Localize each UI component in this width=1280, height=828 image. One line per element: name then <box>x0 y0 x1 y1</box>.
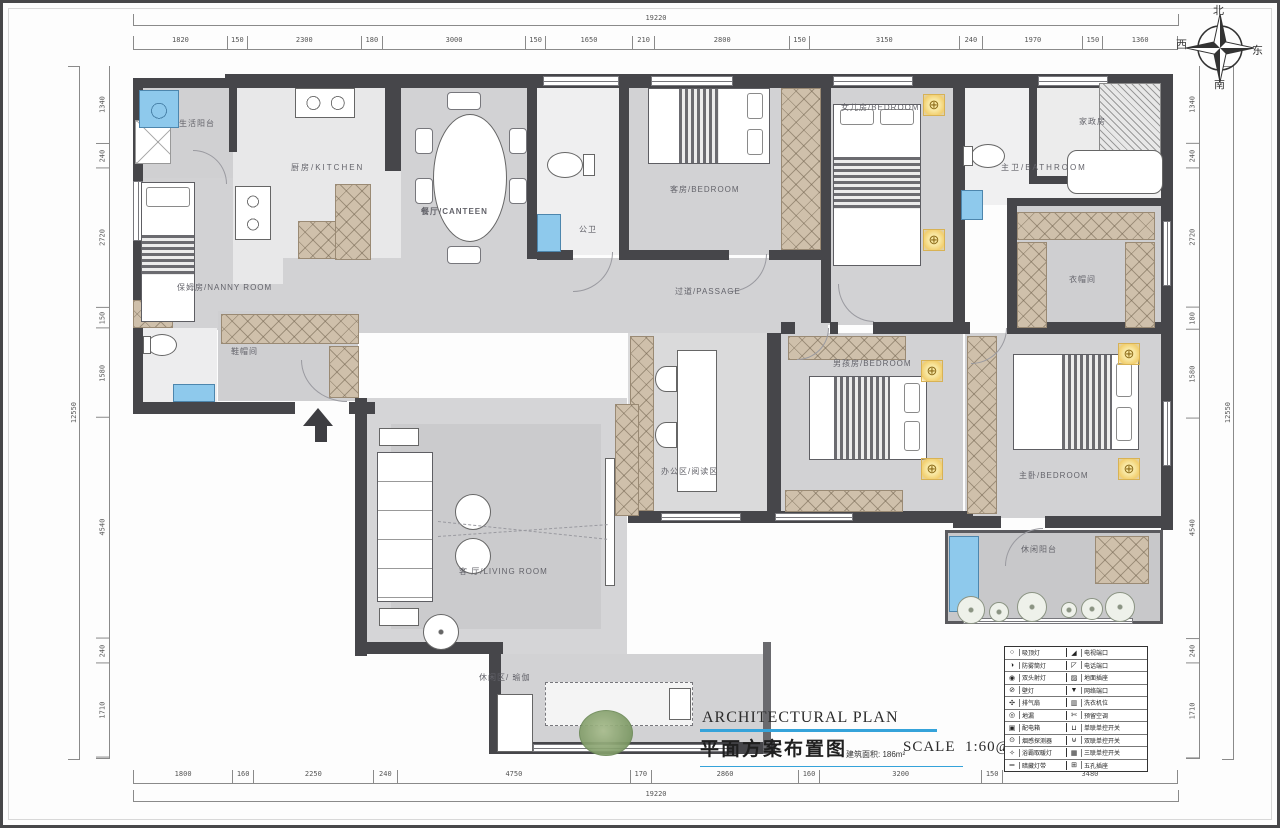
dim-value: 2720 <box>1186 168 1199 308</box>
pillow <box>1116 407 1132 441</box>
legend-row: ═暗藏灯带⊞五孔插座 <box>1005 759 1147 772</box>
wall-segment <box>1007 198 1163 206</box>
legend-icon: ⊙ <box>1005 736 1020 744</box>
dim-value: 1340 <box>96 66 109 144</box>
legend-row: ◉双头射灯▨地面插座 <box>1005 671 1147 684</box>
dim-value: 4750 <box>397 770 630 783</box>
ceiling-light-symbol: ⊕ <box>921 360 943 382</box>
title-underline <box>700 729 937 732</box>
dim-value: 4540 <box>1186 418 1199 639</box>
window <box>1038 76 1108 86</box>
bed-boy <box>809 376 927 460</box>
legend-row: ◎地漏✄预留空调 <box>1005 709 1147 722</box>
dim-value: 150 <box>227 36 247 49</box>
dim-value: 180 <box>361 36 382 49</box>
room-label-passage: 过道/PASSAGE <box>675 286 741 297</box>
compass-label-east: 东 <box>1252 42 1263 58</box>
bed-blanket <box>679 89 719 163</box>
room-label-kitchen: 厨房/KITCHEN <box>291 162 364 173</box>
legend-label: 三联单控开关 <box>1082 748 1147 757</box>
legend-label: 排气扇 <box>1020 698 1067 707</box>
room-label-yoga: 休闲区/ 瑜伽 <box>479 672 530 683</box>
legend-row: ○吸顶灯◢电视端口 <box>1005 647 1147 659</box>
window <box>963 618 1133 624</box>
legend-table: ○吸顶灯◢电视端口 ◑防雾筒灯◸电话端口 ◉双头射灯▨地面插座 ⊘壁灯▼网络端口… <box>1004 646 1148 772</box>
legend-label: 浴霸取暖灯 <box>1020 748 1067 757</box>
wall-segment <box>767 333 781 513</box>
shoe-cabinet <box>221 314 359 344</box>
potted-plant <box>989 602 1009 622</box>
compass-label-south: 南 <box>1214 76 1225 92</box>
yoga-bench <box>669 688 691 720</box>
legend-icon: ⊔ <box>1067 724 1082 732</box>
wash-basin <box>961 190 983 220</box>
legend-label: 电话端口 <box>1082 661 1147 670</box>
legend-icon: ▣ <box>1005 724 1020 732</box>
dim-value: 240 <box>1186 144 1199 168</box>
pillow <box>1116 363 1132 397</box>
legend-label: 单联单控开关 <box>1082 723 1147 732</box>
dim-value: 1580 <box>1186 330 1199 419</box>
side-table <box>379 428 419 446</box>
toilet-tank <box>583 154 595 176</box>
bed-nanny <box>141 182 195 322</box>
dim-value: 4540 <box>96 417 109 639</box>
legend-row: ⊘壁灯▼网络端口 <box>1005 684 1147 697</box>
dim-value: 150 <box>981 770 1001 783</box>
dim-value: 2250 <box>253 770 373 783</box>
toilet-tank <box>963 146 973 166</box>
ceiling-light-symbol: ⊕ <box>1118 458 1140 480</box>
dim-value: 1580 <box>96 329 109 418</box>
pillow <box>904 421 920 451</box>
legend-label: 地漏 <box>1020 711 1067 720</box>
desk-chair <box>655 422 677 448</box>
wash-basin <box>537 214 561 252</box>
legend-label: 配电箱 <box>1020 723 1067 732</box>
legend-label: 防雾筒灯 <box>1020 661 1067 670</box>
legend-label: 暗藏灯带 <box>1020 761 1067 770</box>
bed-guest <box>648 88 770 164</box>
bed-blanket <box>142 235 194 275</box>
dining-chair <box>415 178 433 204</box>
room-label-office: 办公区/阅读区 <box>661 466 718 477</box>
room-label-master-bedroom: 主卧/BEDROOM <box>1019 470 1089 481</box>
wardrobe-cabinet <box>781 88 821 250</box>
legend-icon: ○ <box>1005 649 1020 656</box>
compass-rose <box>1182 8 1258 84</box>
dim-value: 240 <box>96 144 109 168</box>
dim-value: 240 <box>96 639 109 663</box>
building-area: 建筑面积: 186m² <box>846 749 905 760</box>
bed-blanket <box>834 157 920 209</box>
dim-chain-left: 1340 240 2720 150 1580 4540 240 1710 <box>96 66 110 759</box>
floor-lamp <box>423 614 459 650</box>
room-label-daughter: 女儿房/BEDROOM <box>841 102 920 113</box>
legend-icon: ⊘ <box>1005 686 1020 694</box>
wash-basin <box>173 384 215 402</box>
wall-segment <box>1045 516 1163 528</box>
wall-segment <box>619 83 629 259</box>
dim-value: 160 <box>232 770 253 783</box>
dining-chair <box>447 92 481 110</box>
window <box>833 76 913 86</box>
legend-icon: ⊞ <box>1067 761 1082 769</box>
wall-segment <box>1007 206 1017 332</box>
legend-label: 地面插座 <box>1082 673 1147 682</box>
legend-label: 预留空调 <box>1082 711 1147 720</box>
storage-unit <box>497 694 533 752</box>
pillow <box>747 129 763 155</box>
toilet <box>147 334 177 356</box>
pillow <box>747 93 763 119</box>
wall-segment <box>355 398 367 656</box>
window <box>775 513 853 521</box>
toilet-tank <box>143 336 151 354</box>
dim-overall-left: 12550 <box>68 66 80 760</box>
bed-blanket <box>1062 355 1112 449</box>
title-english: ARCHITECTURAL PLAN <box>702 709 899 727</box>
legend-row: ◑防雾筒灯◸电话端口 <box>1005 659 1147 672</box>
legend-row: ▣配电箱⊔单联单控开关 <box>1005 721 1147 734</box>
entry-arrow <box>303 408 333 426</box>
wall-segment <box>769 250 821 260</box>
room-label-master-bath: 主卫/BATHROOM <box>1001 162 1087 173</box>
legend-icon: ⊎ <box>1067 736 1082 744</box>
legend-icon: ◑ <box>1005 662 1020 669</box>
room-label-living: 客 厅/LIVING ROOM <box>459 566 548 577</box>
dim-value: 1970 <box>982 36 1082 49</box>
legend-icon: ▼ <box>1067 687 1082 694</box>
wall-segment <box>619 250 729 260</box>
cloak-wardrobe <box>1017 242 1047 328</box>
cloak-wardrobe <box>1017 212 1155 240</box>
dim-chain-right: 1340 240 2720 180 1580 4540 240 1710 <box>1186 66 1200 759</box>
cloak-wardrobe <box>1125 242 1155 328</box>
legend-icon: ◢ <box>1067 649 1082 657</box>
legend-icon: ═ <box>1005 762 1020 769</box>
legend-icon: ✧ <box>1005 749 1020 757</box>
potted-plant <box>1081 598 1103 620</box>
ceiling-light-symbol: ⊕ <box>921 458 943 480</box>
compass-label-north: 北 <box>1213 2 1224 18</box>
wall-segment <box>781 322 795 334</box>
bookshelf-cabinet <box>615 404 639 516</box>
legend-label: 吸顶灯 <box>1020 648 1067 657</box>
wardrobe-cabinet <box>785 490 903 512</box>
legend-label: 双联单控开关 <box>1082 736 1147 745</box>
bed-blanket <box>834 377 890 459</box>
window <box>533 744 728 752</box>
desk-chair <box>655 366 677 392</box>
wall-segment <box>133 402 295 414</box>
dining-chair <box>415 128 433 154</box>
room-label-leisure-balcony: 休闲阳台 <box>1021 544 1057 555</box>
bed-daughter <box>833 104 921 266</box>
legend-label: 洗衣机位 <box>1082 698 1147 707</box>
dim-value: 160 <box>798 770 819 783</box>
dim-overall-bottom: 19220 <box>133 790 1179 802</box>
compass-label-west: 西 <box>1176 36 1187 52</box>
dim-value: 1710 <box>1186 664 1199 758</box>
window <box>1163 221 1171 286</box>
dim-value: 1820 <box>133 36 227 49</box>
dim-value: 210 <box>632 36 654 49</box>
legend-label: 双头射灯 <box>1020 673 1067 682</box>
dim-chain-bottom: 1800 160 2250 240 4750 170 2860 160 3200… <box>133 770 1178 784</box>
legend-icon: ✄ <box>1067 711 1082 719</box>
legend-icon: ◸ <box>1067 661 1082 669</box>
dim-value: 240 <box>1186 639 1199 663</box>
room-label-housekeeping: 家政房 <box>1079 116 1106 127</box>
legend-icon: ▥ <box>1067 699 1082 707</box>
dim-value: 1650 <box>545 36 632 49</box>
dim-value: 240 <box>959 36 983 49</box>
dim-value: 3150 <box>809 36 958 49</box>
dining-chair <box>509 128 527 154</box>
architectural-floor-plan-sheet: { "title_block": { "title_en": "ARCHITEC… <box>0 0 1280 828</box>
room-label-shoe: 鞋帽间 <box>231 346 258 357</box>
potted-plant <box>1061 602 1077 618</box>
legend-label: 电视端口 <box>1082 648 1147 657</box>
room-label-laundry: 生活阳台 <box>179 118 215 129</box>
pillow <box>146 187 190 207</box>
room-label-cloakroom: 衣帽间 <box>1069 274 1096 285</box>
dining-table <box>433 114 507 242</box>
legend-icon: ▨ <box>1067 674 1082 682</box>
balcony-cabinet <box>1095 536 1149 584</box>
entry-arrow-stem <box>315 426 327 442</box>
legend-icon: ◉ <box>1005 674 1020 682</box>
dim-chain-top: 1820 150 2300 180 3000 150 1650 210 2800… <box>133 36 1178 50</box>
dim-value: 1360 <box>1102 36 1177 49</box>
plant-tree <box>579 710 633 756</box>
toilet <box>547 152 583 178</box>
dim-value: 180 <box>1186 308 1199 330</box>
title-thin-underline <box>700 766 963 767</box>
dim-overall-right: 12550 <box>1222 66 1234 760</box>
side-table <box>379 608 419 626</box>
title-chinese: 平面方案布置图 <box>700 734 847 761</box>
dim-value: 2720 <box>96 168 109 308</box>
tv-cabinet <box>605 458 615 586</box>
legend-icon: ✣ <box>1005 699 1020 707</box>
wall-segment <box>133 78 229 88</box>
legend-row: ⊙烟感探测器⊎双联单控开关 <box>1005 734 1147 747</box>
dim-value: 3200 <box>819 770 981 783</box>
legend-icon: ▦ <box>1067 749 1082 757</box>
washing-machine <box>139 90 179 128</box>
dim-value: 170 <box>630 770 651 783</box>
dining-chair <box>447 246 481 264</box>
dim-value: 240 <box>373 770 398 783</box>
wall-segment <box>821 83 831 323</box>
ceiling-light-symbol: ⊕ <box>923 229 945 251</box>
dim-value: 2300 <box>247 36 361 49</box>
wall-segment <box>229 80 237 152</box>
toilet <box>971 144 1005 168</box>
legend-label: 壁灯 <box>1020 686 1067 695</box>
potted-plant <box>957 596 985 624</box>
room-label-guest: 客房/BEDROOM <box>670 184 740 195</box>
dim-value: 2860 <box>651 770 798 783</box>
window <box>661 513 741 521</box>
dim-value: 1710 <box>96 663 109 758</box>
dim-value: 150 <box>1082 36 1102 49</box>
kitchen-sink <box>295 88 355 118</box>
dim-value: 1800 <box>133 770 232 783</box>
room-label-canteen: 餐厅/CANTEEN <box>421 206 488 217</box>
legend-label: 烟感探测器 <box>1020 736 1067 745</box>
window <box>1163 401 1171 466</box>
dining-chair <box>509 178 527 204</box>
room-label-boy: 男孩房/BEDROOM <box>833 358 912 369</box>
dim-overall-top: 19220 <box>133 14 1179 26</box>
dim-value: 3000 <box>382 36 525 49</box>
legend-row: ✣排气扇▥洗衣机位 <box>1005 696 1147 709</box>
dim-value: 150 <box>789 36 809 49</box>
potted-plant <box>1017 592 1047 622</box>
room-label-nanny: 保姆房/NANNY ROOM <box>177 282 272 293</box>
legend-icon: ◎ <box>1005 711 1020 719</box>
wall-segment <box>527 83 537 259</box>
wall-segment <box>953 516 1001 528</box>
dim-value: 150 <box>96 308 109 328</box>
legend-label: 五孔插座 <box>1082 761 1147 770</box>
sofa <box>377 452 433 602</box>
ceiling-light-symbol: ⊕ <box>1118 343 1140 365</box>
window <box>543 76 619 86</box>
bed-master <box>1013 354 1139 450</box>
dim-value: 2800 <box>654 36 789 49</box>
ceiling-light-symbol: ⊕ <box>923 94 945 116</box>
potted-plant <box>1105 592 1135 622</box>
legend-label: 网络端口 <box>1082 686 1147 695</box>
kitchen-cabinet <box>335 184 371 260</box>
legend-row: ✧浴霸取暖灯▦三联单控开关 <box>1005 746 1147 759</box>
window <box>651 76 733 86</box>
wall-segment <box>830 322 838 334</box>
pillow <box>904 383 920 413</box>
wall-segment <box>385 83 401 171</box>
stove <box>235 186 271 240</box>
dim-value: 150 <box>525 36 545 49</box>
room-label-public-wc: 公卫 <box>579 224 597 235</box>
